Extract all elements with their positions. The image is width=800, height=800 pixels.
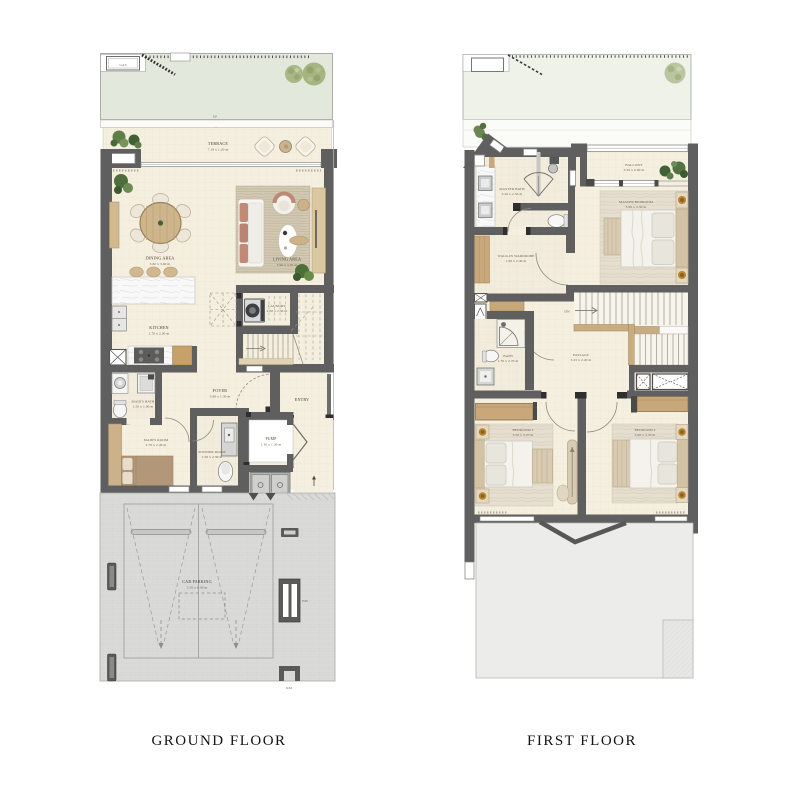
svg-text:DN: DN bbox=[564, 310, 570, 314]
svg-text:KM: KM bbox=[286, 686, 293, 690]
svg-text:LIVING AREA: LIVING AREA bbox=[273, 257, 301, 262]
svg-text:LAUNDRY: LAUNDRY bbox=[268, 304, 286, 308]
svg-text:1.50 x 1.90 m: 1.50 x 1.90 m bbox=[133, 404, 154, 408]
svg-text:BATH: BATH bbox=[503, 354, 513, 358]
svg-text:3.25 x 2.20 m: 3.25 x 2.20 m bbox=[571, 358, 592, 362]
svg-text:PASSAGE: PASSAGE bbox=[573, 353, 589, 357]
svg-text:5.50 x 6.30 m: 5.50 x 6.30 m bbox=[187, 586, 208, 590]
svg-text:PUMP: PUMP bbox=[266, 437, 277, 441]
svg-text:1.60 x 2.40 m: 1.60 x 2.40 m bbox=[506, 259, 527, 263]
svg-text:BALCONY: BALCONY bbox=[625, 163, 643, 167]
svg-text:POWDER ROOM: POWDER ROOM bbox=[198, 450, 226, 454]
svg-text:3.50 x 3.25 m: 3.50 x 3.25 m bbox=[513, 433, 534, 437]
svg-text:FIRST FLOOR: FIRST FLOOR bbox=[527, 733, 637, 749]
svg-text:BEDROOM 3: BEDROOM 3 bbox=[512, 428, 533, 432]
svg-text:GROUND FLOOR: GROUND FLOOR bbox=[151, 733, 286, 749]
svg-text:1.70 x 2.70 m: 1.70 x 2.70 m bbox=[498, 359, 519, 363]
svg-text:MASTER BEDROOM: MASTER BEDROOM bbox=[619, 200, 654, 204]
svg-text:KITCHEN: KITCHEN bbox=[149, 325, 168, 330]
svg-text:BEDROOM 2: BEDROOM 2 bbox=[634, 428, 655, 432]
svg-text:UP: UP bbox=[238, 348, 243, 352]
svg-text:2.70 x 2.00 m: 2.70 x 2.00 m bbox=[149, 332, 170, 336]
svg-text:ENTRY: ENTRY bbox=[295, 397, 309, 402]
svg-text:1.50 x 2.30 m: 1.50 x 2.30 m bbox=[202, 455, 223, 459]
svg-text:7.10 x 1.20 m: 7.10 x 1.20 m bbox=[208, 148, 229, 152]
svg-text:3.80 x 1.30 m: 3.80 x 1.30 m bbox=[210, 395, 231, 399]
svg-text:GAS: GAS bbox=[119, 63, 126, 67]
svg-text:3.50 x 0.90 m: 3.50 x 0.90 m bbox=[624, 168, 645, 172]
svg-text:CAR PARKING: CAR PARKING bbox=[182, 579, 212, 584]
svg-text:2.00 x 2.30 m: 2.00 x 2.30 m bbox=[267, 309, 288, 313]
svg-text:MASTER BATH: MASTER BATH bbox=[499, 187, 525, 191]
svg-text:3.60 x 3.60 m: 3.60 x 3.60 m bbox=[150, 262, 171, 266]
svg-text:TERRACE: TERRACE bbox=[208, 141, 228, 146]
svg-text:3.90 x 3.85 m: 3.90 x 3.85 m bbox=[277, 263, 298, 267]
svg-text:DINING AREA: DINING AREA bbox=[146, 256, 175, 261]
svg-text:MAID'S BATH: MAID'S BATH bbox=[131, 400, 154, 404]
svg-text:FOYER: FOYER bbox=[213, 388, 228, 393]
svg-text:2.70 x 2.40 m: 2.70 x 2.40 m bbox=[146, 443, 167, 447]
svg-text:1.30 x 1.30 m: 1.30 x 1.30 m bbox=[261, 443, 282, 447]
svg-text:3.60 x 3.70 m: 3.60 x 3.70 m bbox=[635, 433, 656, 437]
svg-text:3.90 x 3.50 m: 3.90 x 3.50 m bbox=[626, 205, 647, 209]
svg-text:3.20 x 2.50 m: 3.20 x 2.50 m bbox=[502, 192, 523, 196]
svg-text:UP: UP bbox=[213, 115, 218, 119]
svg-text:EM: EM bbox=[302, 599, 308, 603]
svg-text:WALK-IN WARDROBE: WALK-IN WARDROBE bbox=[497, 254, 534, 258]
svg-text:MAID'S ROOM: MAID'S ROOM bbox=[144, 438, 169, 442]
